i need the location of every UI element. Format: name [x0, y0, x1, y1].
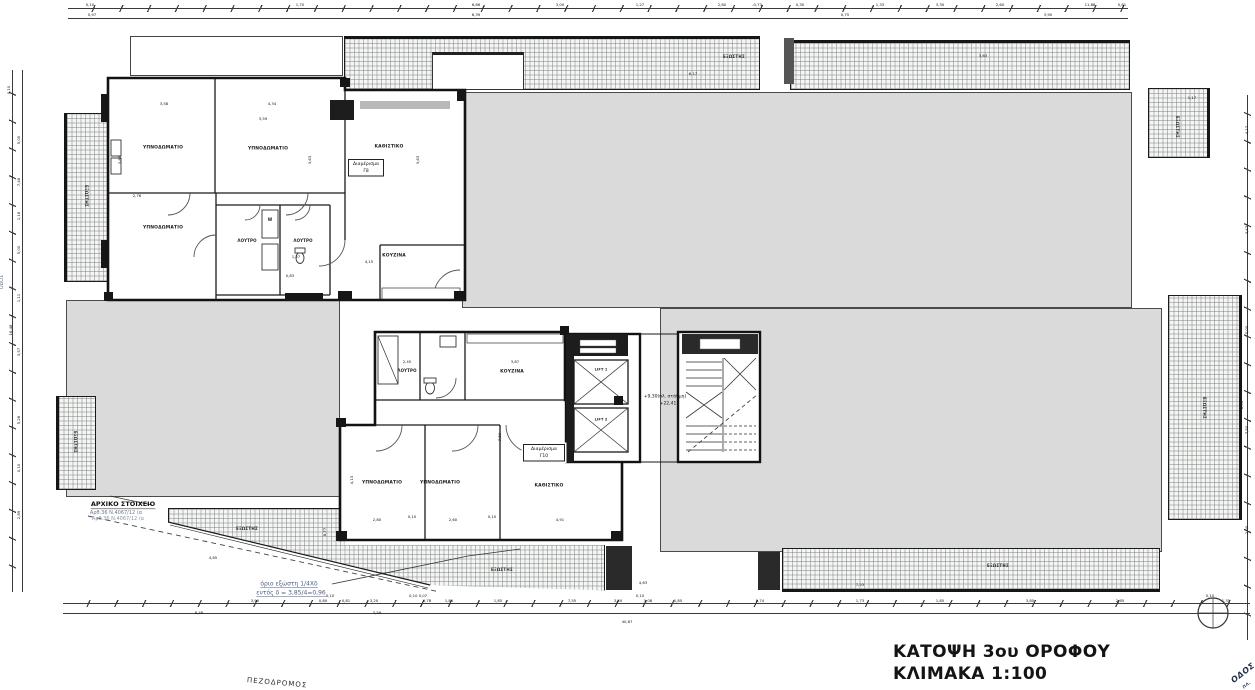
dim: 0,81 — [1118, 3, 1126, 7]
dim: 3,00 — [556, 3, 564, 7]
dim: 1,35 — [1222, 599, 1230, 603]
room-label-bedroom: ΥΠΝΟΔΩΜΑΤΙΟ — [248, 147, 288, 152]
dim: 1,27 — [636, 3, 644, 7]
balcony-label: ΕΞΩΣΤΗΣ — [987, 564, 1009, 568]
room-label-kitchen: ΚΟΥΖΙΝΑ — [500, 370, 524, 375]
dim: 0,10 0,07 — [409, 594, 427, 598]
dim: 4,15 — [365, 260, 373, 264]
apartment-tag-g8: Διαμέρισμα Γ8 — [348, 159, 384, 177]
dim: 0,10 — [326, 594, 334, 598]
dim: 1,80 — [445, 599, 453, 603]
dim: 3,59 — [259, 117, 267, 121]
dim: 7,48 — [17, 178, 21, 186]
balcony-label: ΕΞΩΣΤΗΣ — [491, 568, 513, 572]
dim: 2,45 — [403, 360, 411, 364]
dim: 5,00 — [17, 246, 21, 254]
dim: 4,65 — [209, 556, 217, 560]
dim-rail-bottom-1 — [63, 603, 1250, 604]
dim: 3,83 — [118, 156, 122, 164]
street-label-side: ΟΔΟΣ — [0, 275, 5, 289]
dim: 3,59 — [373, 611, 381, 615]
dim: 0,10 — [86, 3, 94, 7]
balcony-label: ΕΞΩΣΤΗΣ — [1175, 116, 1179, 138]
balcony-label: ΕΞΩΣΤΗΣ — [1202, 397, 1206, 419]
dim: 0,30 — [796, 3, 804, 7]
dim: 5,00 — [17, 136, 21, 144]
drawing-title: ΚΑΤΟΨΗ 3ου ΟΡΟΦΟΥ — [893, 641, 1110, 663]
room-label-bedroom: ΥΠΝΟΔΩΜΑΤΙΟ — [362, 481, 402, 486]
dim: 3,20 — [370, 599, 378, 603]
apartment-tag-g10: Διαμέρισμα Γ10 — [523, 444, 565, 462]
apartment-tag-unit: Γ8 — [350, 168, 382, 175]
dim: 2,60 — [449, 518, 457, 522]
dim: -0,73 — [752, 3, 762, 7]
dim: 40,87 — [622, 620, 633, 624]
dim: 5,28 — [17, 416, 21, 424]
dim: 8,05 — [1240, 401, 1244, 409]
dim: 3,87 — [511, 360, 519, 364]
plan-canvas: Διαμέρισμα Γ8 Διαμέρισμα Γ10 ΚΑΤΟΨΗ 3ου … — [0, 0, 1255, 690]
room-label-kitchen: ΚΟΥΖΙΝΑ — [382, 254, 406, 259]
dim: 0,80 — [319, 599, 327, 603]
dim: 2,60 — [718, 3, 726, 7]
dim-rail-top-1 — [68, 8, 1128, 9]
dim: 1,18 — [17, 212, 21, 220]
dim: 1,85 — [494, 599, 502, 603]
apartment-tag-label: Διαμέρισμα — [525, 446, 563, 453]
dim: 0,97 — [88, 13, 96, 17]
dim-rail-left-2 — [22, 70, 23, 592]
dim: 3,57 — [17, 348, 21, 356]
dim: 0,10 — [7, 86, 11, 94]
dim: 3,63 — [416, 156, 420, 164]
dim: 5,00 — [1245, 326, 1249, 334]
title-block: ΚΑΤΟΨΗ 3ου ΟΡΟΦΟΥ ΚΛΙΜΑΚΑ 1:100 — [893, 641, 1110, 686]
balcony-label: ΕΞΩΣΤΗΣ — [723, 55, 745, 59]
dim: 3,58 — [160, 102, 168, 106]
dim: 7,50 — [498, 433, 502, 441]
dim: 2,85 — [1116, 599, 1124, 603]
dim: 1,11 — [17, 294, 21, 302]
dim-rail-top-2 — [68, 18, 1128, 19]
room-label-bath: ΛΟΥΤΡΟ — [293, 239, 312, 243]
dim: 1,17 — [1188, 96, 1196, 100]
dim: 0,10 — [488, 515, 496, 519]
dim: 16,48 — [9, 325, 13, 336]
room-label-bedroom: ΥΠΝΟΔΩΜΑΤΙΟ — [143, 226, 183, 231]
room-label-bedroom: ΥΠΝΟΔΩΜΑΤΙΟ — [420, 481, 460, 486]
dim: 0,78 — [423, 599, 431, 603]
dim: 0,10 — [1206, 594, 1214, 598]
lift-core — [566, 334, 640, 462]
level-label: +22,41 — [660, 402, 677, 407]
dim: 1,33 — [876, 3, 884, 7]
dim: 4,34 — [268, 102, 276, 106]
dim: 4,63 — [639, 581, 647, 585]
dim: 1,73 — [856, 599, 864, 603]
note-balcony-limit: εντός δ = 3,85/4=0,96 — [256, 589, 325, 596]
dim: 2,76 — [133, 194, 141, 198]
note-regulation: Αρθ.36 Ν.4067/12 (α — [90, 510, 142, 515]
dim: 8,48 — [195, 611, 203, 615]
room-label-wc: W — [268, 218, 273, 222]
balcony-label: ΕΞΩΣΤΗΣ — [73, 431, 77, 453]
dim: 0,10 — [408, 515, 416, 519]
note-balcony-limit: όριο εξώστη 1/4Χδ — [260, 580, 317, 587]
dim: 4,17 — [1245, 126, 1249, 134]
apartment-tag-unit: Γ10 — [525, 453, 563, 460]
dim: 2,30 — [1245, 526, 1249, 534]
level-label: +9,30(πλ. στάθμη) — [644, 395, 687, 400]
dim: 3,30 — [936, 3, 944, 7]
room-label-living: ΚΑΘΙΣΤΙΚΟ — [535, 484, 564, 489]
lift-label: LIFT 1 — [595, 368, 608, 372]
dim: 1,70 — [296, 3, 304, 7]
dim: 2,89 — [17, 511, 21, 519]
dim: 1,27 — [292, 255, 300, 259]
dim: 0,10 — [17, 464, 21, 472]
apartment-tag-label: Διαμέρισμα — [350, 161, 382, 168]
note-regulation: Αρθ.36 Ν.4067/12 (α — [92, 516, 144, 521]
dim: 4,91 — [556, 518, 564, 522]
dim-rail-right — [1247, 95, 1248, 640]
dim: 3,90 — [1044, 13, 1052, 17]
dim: 6,39 — [472, 13, 480, 17]
dim: 2,80 — [373, 518, 381, 522]
note-initial-element: ΑΡΧΙΚΟ ΣΤΟΙΧΕΙΟ — [91, 501, 155, 509]
dim: 6,17 — [689, 72, 697, 76]
dim: 3,63 — [979, 54, 987, 58]
dim: 2,60 — [996, 3, 1004, 7]
plan-linework — [0, 0, 1255, 690]
balcony-label: ΕΞΩΣΤΗΣ — [84, 185, 88, 207]
dim: 11,88 — [1085, 3, 1096, 7]
room-label-living: ΚΑΘΙΣΤΙΚΟ — [375, 145, 404, 150]
dim: 3,47 — [1245, 226, 1249, 234]
drawing-scale: ΚΛΙΜΑΚΑ 1:100 — [893, 663, 1110, 685]
dim: 7,55 — [568, 599, 576, 603]
dim: 0,81 — [342, 599, 350, 603]
dim: 1,85 — [674, 599, 682, 603]
dim: 0,10 — [636, 594, 644, 598]
dim: 3,90 — [251, 599, 259, 603]
dim: 1,85 — [936, 599, 944, 603]
dim: 7,50 — [1245, 426, 1249, 434]
dim: 8,77 — [323, 528, 327, 536]
walls-apartment-g8 — [108, 78, 465, 300]
dim: 6,86 — [472, 3, 480, 7]
dim: 0,83 — [286, 274, 294, 278]
room-label-bath: ΛΟΥΤΡΟ — [237, 239, 256, 243]
dim: 3,63 — [308, 156, 312, 164]
dim: 3,85 — [1026, 599, 1034, 603]
dim: 1,08 — [644, 599, 652, 603]
dim: 7,53 — [856, 583, 864, 587]
dim: 0,75 — [841, 13, 849, 17]
annotation-lines — [88, 496, 1228, 628]
room-label-bath: ΛΟΥΤΡΟ — [397, 369, 416, 373]
dim: 3,20 — [614, 599, 622, 603]
dim-rail-bottom-2 — [63, 613, 1250, 614]
dim: 4,13 — [350, 476, 354, 484]
lift-label: LIFT 2 — [595, 418, 608, 422]
room-label-bedroom: ΥΠΝΟΔΩΜΑΤΙΟ — [143, 146, 183, 151]
dim: 5,74 — [756, 599, 764, 603]
balcony-label: ΕΞΩΣΤΗΣ — [236, 527, 258, 531]
